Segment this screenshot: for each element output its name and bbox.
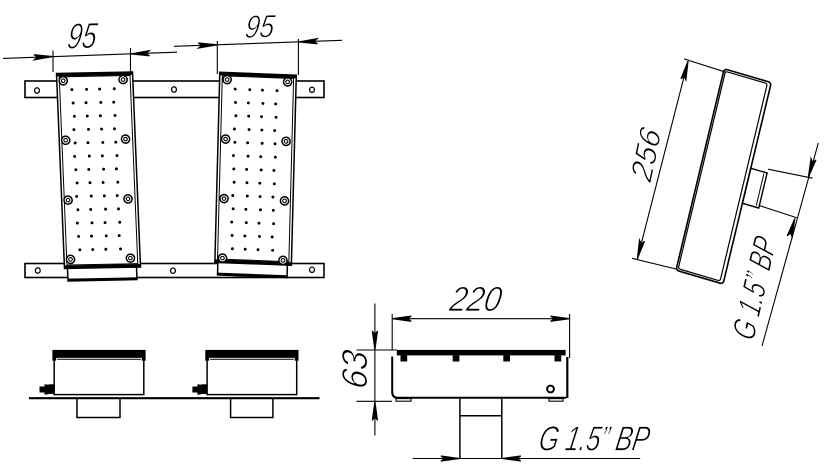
svg-text:G 1.5” BP: G 1.5” BP: [536, 420, 653, 459]
svg-text:220: 220: [446, 280, 505, 319]
svg-text:95: 95: [243, 8, 277, 45]
svg-text:63: 63: [334, 347, 375, 391]
